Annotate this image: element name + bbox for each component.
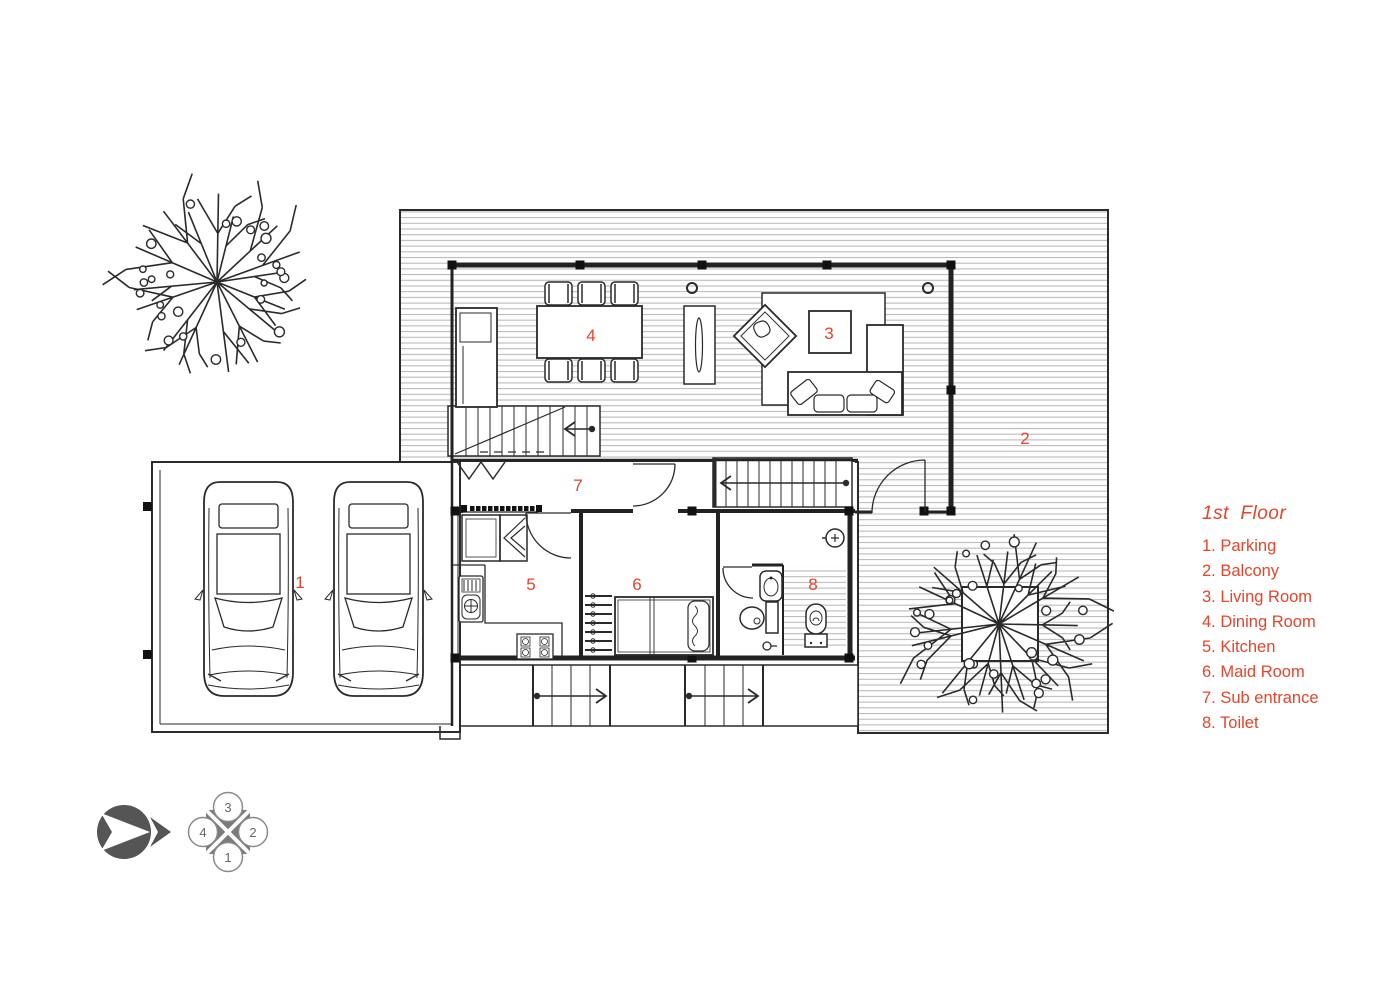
- room-label-dining-room: 4: [586, 326, 595, 345]
- tree-icon: [103, 174, 306, 374]
- room-label-balcony: 2: [1020, 429, 1029, 448]
- compass-number-right: 2: [249, 825, 256, 840]
- legend-item: 5. Kitchen: [1202, 635, 1319, 660]
- legend-list: 1. Parking 2. Balcony 3. Living Room 4. …: [1202, 534, 1319, 736]
- legend-item: 4. Dining Room: [1202, 610, 1319, 635]
- legend-item: 8. Toilet: [1202, 711, 1319, 736]
- compass-number-left: 4: [199, 825, 206, 840]
- legend-item: 3. Living Room: [1202, 585, 1319, 610]
- tv-console: [684, 306, 715, 384]
- room-label-kitchen: 5: [526, 575, 535, 594]
- legend-item: 1. Parking: [1202, 534, 1319, 559]
- washbasin: [760, 571, 782, 601]
- stove: [517, 634, 553, 659]
- room-label-sub-entrance: 7: [573, 476, 582, 495]
- car-icon: [325, 482, 432, 696]
- bed: [615, 597, 713, 655]
- view-compass-icon: 3 2 1 4: [189, 793, 268, 872]
- room-label-living-room: 3: [824, 324, 833, 343]
- legend-item: 7. Sub entrance: [1202, 686, 1319, 711]
- kitchen-sink: [459, 576, 483, 622]
- compass-number-top: 3: [224, 800, 231, 815]
- toilet-2: [805, 604, 827, 647]
- room-label-parking: 1: [295, 573, 304, 592]
- legend-item: 2. Balcony: [1202, 559, 1319, 584]
- car-icon: [195, 482, 302, 696]
- pantry-cabinet: [456, 308, 497, 407]
- room-label-toilet: 8: [808, 575, 817, 594]
- room-label-maid-room: 6: [632, 575, 641, 594]
- legend: 1st Floor 1. Parking 2. Balcony 3. Livin…: [1202, 503, 1319, 736]
- legend-title: 1st Floor: [1202, 503, 1319, 525]
- legend-item: 6. Maid Room: [1202, 660, 1319, 685]
- floor-plan-drawing: 1 2 3 4 5 6 7 8 3 2 1 4: [0, 0, 1398, 1000]
- compass-number-bottom: 1: [224, 850, 231, 865]
- floor-plan-page: 1 2 3 4 5 6 7 8 3 2 1 4 1st Floor 1. Par…: [0, 0, 1398, 1000]
- north-arrow-icon: [97, 805, 171, 859]
